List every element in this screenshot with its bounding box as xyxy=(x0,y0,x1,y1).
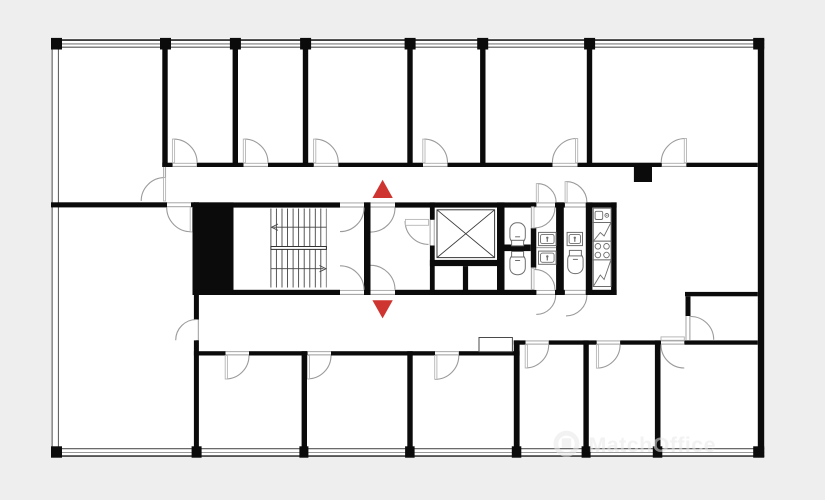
svg-text:MatchOffice: MatchOffice xyxy=(589,433,716,457)
